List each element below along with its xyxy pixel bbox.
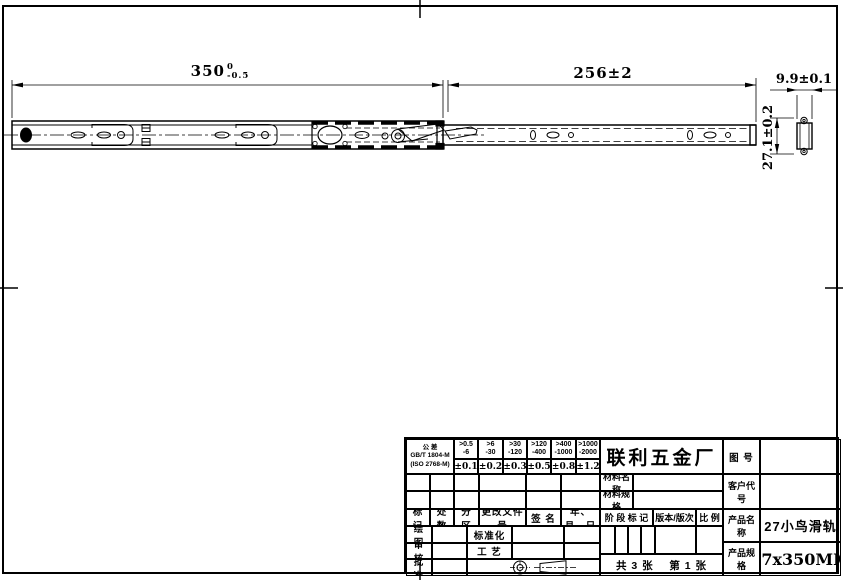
customer-code-value: [760, 474, 841, 509]
end-view: [797, 117, 812, 154]
version-label: 版本/版次: [653, 509, 696, 526]
stage-mark-cell: [600, 526, 615, 554]
revision-cell: [454, 491, 479, 509]
material-name-value: [633, 474, 723, 491]
scale-label: 比 例: [696, 509, 723, 526]
standardize-date-cell: [564, 526, 600, 543]
tol-value-6: ±1.2: [576, 459, 600, 474]
customer-code-label: 客户代号: [723, 474, 760, 509]
product-spec-value: 27x350MM: [760, 542, 841, 576]
dim-section-width: 9.9±0.1: [768, 72, 840, 87]
revision-header-signature: 签 名: [526, 509, 561, 526]
process-label: 工 艺: [467, 543, 512, 559]
inner-rail: [443, 125, 756, 145]
sheet-count: 共 3 张 第 1 张: [600, 554, 723, 576]
tol-range-6: >1000-2000: [576, 439, 600, 459]
revision-cell: [430, 491, 454, 509]
dim-tol-lower: -0.5: [227, 72, 249, 81]
company-name: 联利五金厂: [600, 439, 723, 474]
tol-value-3: ±0.3: [503, 459, 527, 474]
revision-header-date: 年、月、日: [561, 509, 600, 526]
tol-value-2: ±0.2: [478, 459, 503, 474]
draw-label: 绘 图: [406, 526, 432, 543]
material-spec-label: 材料规格: [600, 491, 633, 509]
revision-cell: [454, 474, 479, 491]
dim-value: 350: [191, 62, 225, 80]
tolerance-title: 公 差: [423, 444, 438, 452]
tol-range-3: >30-120: [503, 439, 527, 459]
scale-value-cell: [696, 526, 723, 554]
dim-height-text: 27.1±0.2: [762, 104, 777, 169]
check-label: 审 核: [406, 543, 432, 559]
revision-cell: [430, 474, 454, 491]
product-name-label: 产品名称: [723, 509, 760, 542]
stage-mark-cell: [615, 526, 628, 554]
revision-cell: [526, 491, 561, 509]
approve-signature-cell: [432, 559, 467, 576]
dimension-arrows: [12, 83, 822, 154]
revision-cell: [561, 474, 600, 491]
material-spec-value: [633, 491, 723, 509]
tol-range-4: >120-400: [527, 439, 551, 459]
inner-rail-holes: [531, 131, 731, 140]
stage-mark-cell: [628, 526, 641, 554]
revision-cell: [479, 491, 526, 509]
tolerance-standard-cell: 公 差 GB/T 1804-M (ISO 2768-M): [406, 439, 454, 474]
tol-value-5: ±0.8: [551, 459, 576, 474]
drawing-no-value: [760, 439, 841, 474]
revision-cell: [406, 491, 430, 509]
draw-signature-cell: [432, 526, 467, 543]
revision-header-docno: 更改文件号: [479, 509, 526, 526]
projection-symbol-cell: [467, 559, 600, 576]
tol-value-1: ±0.1: [454, 459, 478, 474]
dim-overall-length: 3500-0.5: [165, 62, 275, 81]
tolerance-standard: GB/T 1804-M: [410, 452, 449, 460]
stage-mark-label: 阶 段 标 记: [600, 509, 653, 526]
tol-range-2: >6-30: [478, 439, 503, 459]
dim-section-height: 27.1±0.2: [742, 108, 796, 166]
first-angle-projection-icon: [468, 560, 599, 575]
standardize-label: 标准化: [467, 526, 512, 543]
latch-lever: [392, 124, 478, 143]
dimension-lines: [12, 78, 838, 154]
product-spec-label: 产品规格: [723, 542, 760, 576]
revision-header-zone: 分 区: [454, 509, 479, 526]
revision-cell: [561, 491, 600, 509]
tol-value-4: ±0.5: [527, 459, 551, 474]
title-block: 公 差 GB/T 1804-M (ISO 2768-M) >0.5-6 >6-3…: [404, 437, 839, 574]
revision-header-count: 处 数: [430, 509, 454, 526]
process-signature-cell: [512, 543, 564, 559]
stage-mark-cell: [641, 526, 655, 554]
drawing-no-label: 图 号: [723, 439, 760, 474]
version-value-cell: [655, 526, 696, 554]
tol-range-5: >400-1000: [551, 439, 576, 459]
revision-cell: [406, 474, 430, 491]
drawing-sheet: 3500-0.5 256±2 9.9±0.1 27.1±0.2 公 差 GB/T…: [0, 0, 843, 580]
revision-cell: [479, 474, 526, 491]
product-name-value: 27小鸟滑轨: [760, 509, 841, 542]
material-name-label: 材料名称: [600, 474, 633, 491]
revision-header-mark: 标 记: [406, 509, 430, 526]
dim-extension-length: 256±2: [555, 64, 651, 82]
tolerance-iso: (ISO 2768-M): [410, 461, 449, 469]
approve-label: 批 准: [406, 559, 432, 576]
process-date-cell: [564, 543, 600, 559]
revision-cell: [526, 474, 561, 491]
check-signature-cell: [432, 543, 467, 559]
standardize-signature-cell: [512, 526, 564, 543]
tol-range-1: >0.5-6: [454, 439, 478, 459]
